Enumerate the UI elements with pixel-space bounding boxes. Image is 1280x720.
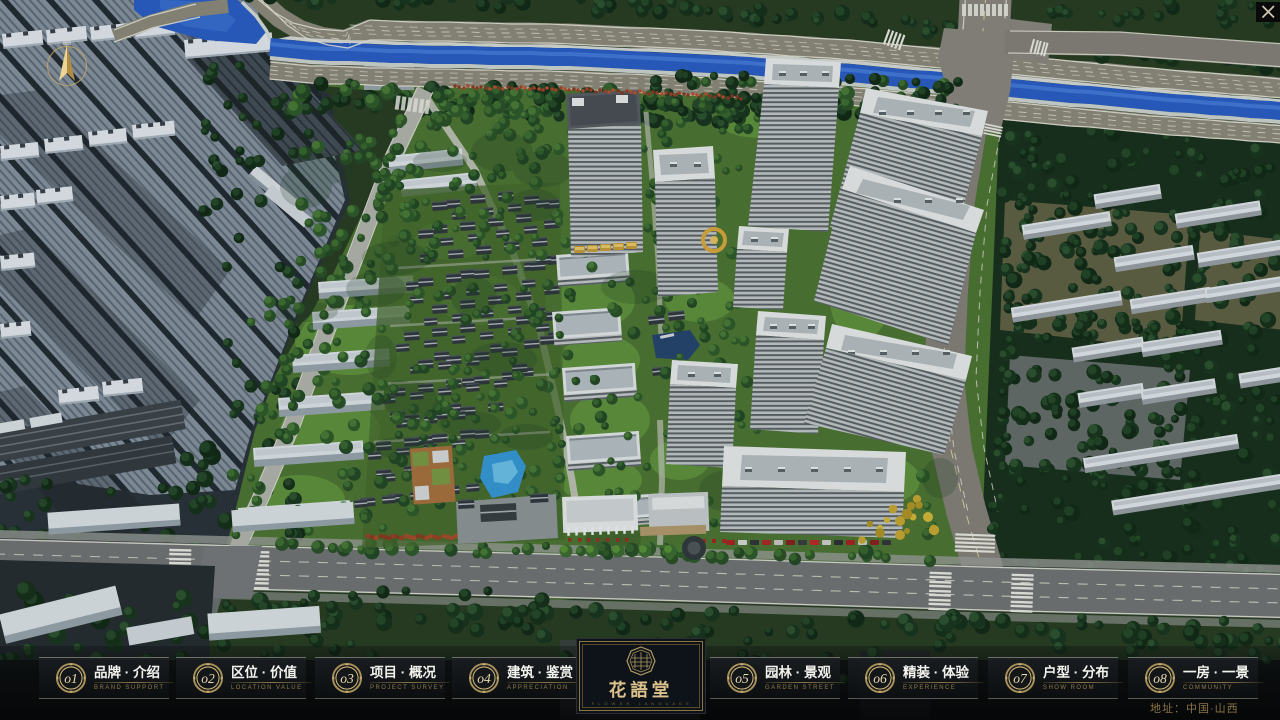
svg-text:o6: o6 xyxy=(873,671,887,686)
svg-text:o3: o3 xyxy=(340,671,354,686)
svg-text:o2: o2 xyxy=(201,671,215,686)
svg-text:o5: o5 xyxy=(735,671,749,686)
svg-text:o7: o7 xyxy=(1013,671,1028,686)
svg-text:o4: o4 xyxy=(477,671,491,686)
svg-text:o8: o8 xyxy=(1153,671,1167,686)
svg-text:o1: o1 xyxy=(64,671,78,686)
svg-text:F L O W E R · L A N G U A G E: F L O W E R · L A N G U A G E xyxy=(592,701,691,706)
svg-text:花語堂: 花語堂 xyxy=(609,680,674,700)
